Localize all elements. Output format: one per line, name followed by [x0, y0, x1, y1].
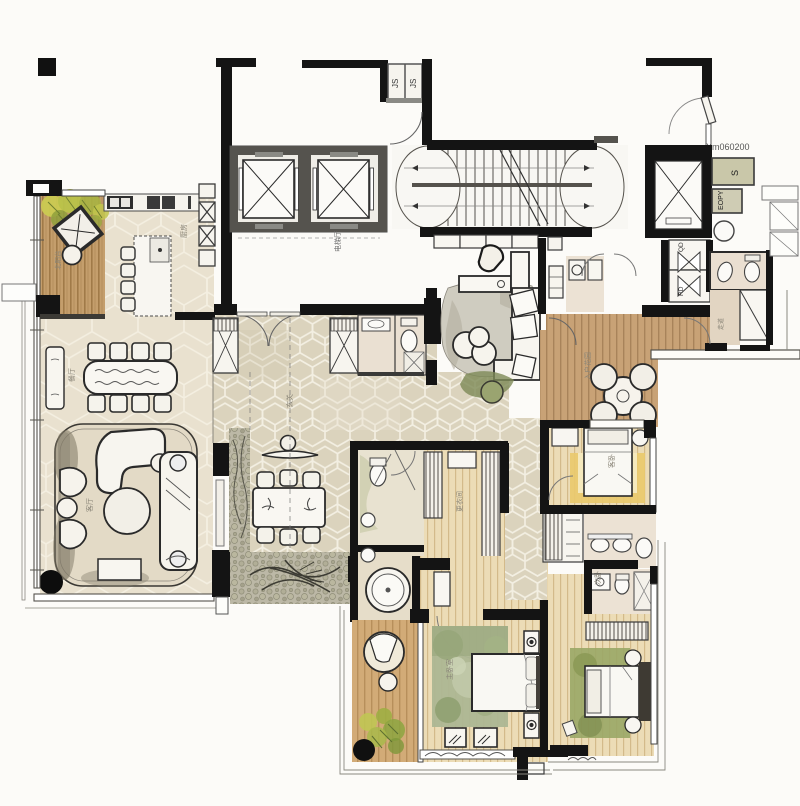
svg-text:更衣间: 更衣间 [455, 491, 464, 512]
svg-text:主卧室: 主卧室 [445, 659, 454, 680]
svg-text:EOPY: EOPY [718, 190, 725, 210]
svg-text:JS: JS [391, 79, 400, 88]
svg-text:RD: RD [678, 286, 685, 296]
svg-text:客厅: 客厅 [85, 498, 94, 512]
svg-text:走道: 走道 [717, 318, 725, 330]
svg-text:入户花园: 入户花园 [583, 352, 592, 380]
svg-text:餐厅: 餐厅 [67, 368, 76, 382]
svg-text:客卧: 客卧 [607, 454, 616, 468]
svg-text:JS: JS [409, 79, 418, 88]
svg-text:次卧: 次卧 [593, 571, 602, 585]
svg-text:北阳台: 北阳台 [53, 251, 62, 271]
svg-text:S: S [730, 170, 740, 176]
svg-text:厨房: 厨房 [179, 224, 188, 238]
svg-text:玄关: 玄关 [285, 394, 294, 408]
svg-text:电梯厅: 电梯厅 [333, 231, 342, 252]
svg-text:QD: QD [678, 242, 685, 252]
svg-text:Xm060200: Xm060200 [706, 142, 750, 152]
